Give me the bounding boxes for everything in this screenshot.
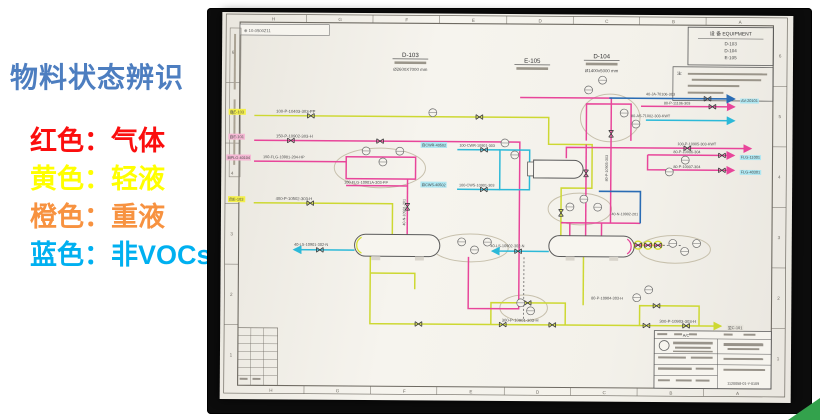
diagram-label: F	[405, 17, 408, 22]
diagram-label: 80-AS-71002-303-KWT	[631, 114, 671, 118]
diagram-label: D-103	[402, 52, 419, 59]
revision-table	[238, 328, 278, 386]
diagram-label: 2	[230, 292, 233, 297]
diagram-label: D-104	[593, 53, 610, 60]
diagram-label: G	[338, 17, 342, 22]
diagram-label: 40-JA-70106-303	[646, 92, 675, 96]
diagram-label: 40-N-10901-201	[402, 199, 406, 226]
exchanger-E-105	[533, 160, 583, 178]
diagram-label: Ø2600X7000 mm	[393, 67, 428, 72]
diagram-label: A/C	[683, 333, 690, 338]
diagram-label: E-105	[524, 58, 541, 65]
legend-item: 红色：气体	[30, 122, 212, 160]
diagram-label: A	[736, 391, 740, 396]
diagram-label: 400-P-10502-303-H	[276, 196, 313, 201]
diagram-label: A	[739, 20, 743, 25]
diagram-label: D	[538, 18, 542, 23]
diagram-label: 3	[230, 231, 233, 236]
diagram-label: 自E-101	[229, 134, 244, 139]
drum-D-103	[354, 234, 439, 256]
diagram-label: E	[472, 18, 475, 23]
diagram-label: D-104	[724, 48, 737, 53]
legend-item: 橙色：重液	[30, 198, 212, 236]
diagram-label: 6	[779, 54, 782, 59]
diagram-label: G	[336, 388, 340, 393]
diagram-label: 150-FLG-10901-204-HP	[263, 155, 305, 159]
diagram-label: 3	[778, 235, 781, 240]
diagram-label: E-105	[725, 55, 738, 60]
diagram-label: 80-P-10907-304	[673, 165, 700, 169]
drawing-paper: 自E-103自E-101自FLG-40104自E-103100-P-10403-…	[220, 12, 794, 403]
diagram-label: 至C-101	[728, 325, 743, 330]
page-title: 物料状态辨识	[10, 56, 184, 96]
diagram-label: 1	[777, 356, 780, 361]
diagram-label: D-103	[724, 41, 737, 46]
diagram-label: 80-P-11106-303	[664, 101, 691, 105]
diagram-label: 4	[231, 171, 234, 176]
diagram-label: 40-LS-10901-302-N	[294, 243, 328, 247]
drum-D-104	[549, 236, 634, 257]
pid-drawing-photo: 自E-103自E-101自FLG-40104自E-103100-P-10403-…	[207, 8, 812, 414]
diagram-label: 4	[778, 175, 781, 180]
diagram-label: 1120058-01-Y-0109	[727, 382, 759, 386]
diagram-label: FLG-40301	[741, 170, 761, 174]
pid-diagram: 自E-103自E-101自FLG-40104自E-103100-P-10403-…	[220, 12, 794, 403]
diagram-label: 设 备 EQUIPMENT	[710, 30, 752, 37]
diagram-label: 注:	[677, 70, 682, 76]
diagram-label: 自FLG-40104	[227, 155, 250, 160]
diagram-label: 80-P-10905-303	[605, 155, 609, 181]
diagram-label: 100-CWS-10901-303	[459, 183, 494, 187]
diagram-label: 5	[778, 114, 781, 119]
diagram-label: C	[605, 19, 609, 24]
title-block	[654, 331, 771, 389]
valve-symbols	[286, 93, 726, 328]
diagram-label: F	[403, 389, 406, 394]
diagram-label: 1	[230, 352, 233, 357]
diagram-label: H	[272, 16, 275, 21]
diagram-label: FLG-11001	[741, 156, 760, 160]
diagram-label: H	[269, 388, 272, 393]
diagram-label: 40-LS-10902-302-N	[490, 244, 524, 248]
instrument-bubbles	[361, 75, 702, 317]
diagram-label: 300-P-10903-303-H	[659, 319, 696, 324]
diagram-label: AV-20101	[741, 99, 758, 103]
diagram-label: 100-P-10905-303-KWT	[677, 142, 716, 146]
diagram-label: 2	[777, 296, 780, 301]
slide: 物料状态辨识 红色：气体黄色：轻液橙色：重液蓝色：非VOCs	[0, 0, 820, 420]
legend-item: 蓝色：非VOCs	[30, 236, 212, 274]
legend-item: 黄色：轻液	[30, 160, 212, 198]
diagram-label: D	[536, 390, 540, 395]
diagram-label: 150-P-10902-303-H	[276, 133, 313, 138]
diagram-label: E	[469, 389, 472, 394]
diagram-label: 自CWS-40502	[421, 182, 445, 187]
diagram-label: 80-P-10906-304	[673, 150, 700, 154]
diagram-label: B	[672, 19, 675, 24]
material-color-legend: 红色：气体黄色：轻液橙色：重液蓝色：非VOCs	[30, 122, 212, 274]
diagram-label: 100-FLG-10901A-303-PP	[344, 181, 388, 185]
diagram-label: 100-P-10403-303-PP	[276, 109, 316, 114]
diagram-label: B	[669, 391, 672, 396]
diagram-label: Ø1400x5000 mm	[585, 68, 619, 73]
notes-box	[673, 67, 773, 101]
pencil-marks	[333, 92, 711, 322]
diagram-label: 80-P-10904-303-H	[591, 296, 623, 300]
diagram-label: 100-CWR-10901-303	[459, 144, 495, 148]
diagram-label: C	[603, 390, 607, 395]
diagram-label: 300-P-10901-303-H	[502, 318, 539, 323]
diagram-label: ⊕ 10-0500Z11	[244, 28, 271, 33]
diagram-label: 自E-103	[229, 197, 244, 202]
diagram-label: 自CWR-40502	[422, 142, 446, 147]
diagram-label: 40-N-10902-201	[612, 212, 639, 216]
